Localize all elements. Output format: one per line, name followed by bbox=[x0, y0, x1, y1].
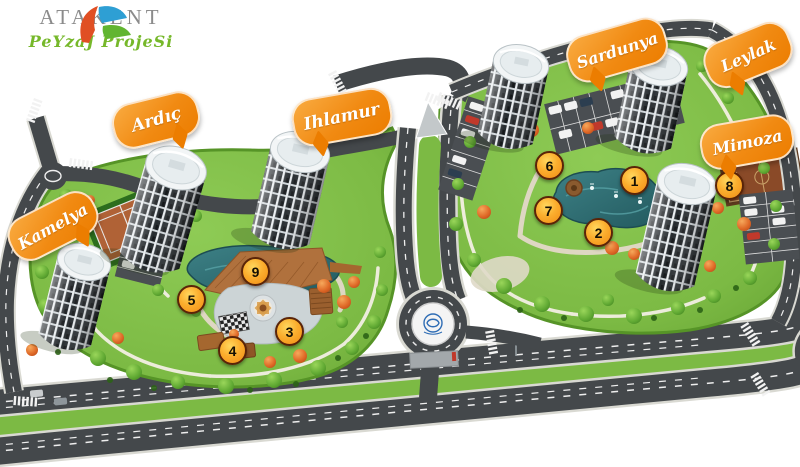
atakent-logo-icon bbox=[68, 4, 134, 44]
building-label-text: Mimoza bbox=[710, 125, 783, 158]
poi-marker-5[interactable]: 5 bbox=[177, 285, 206, 314]
poi-marker-6[interactable]: 6 bbox=[535, 151, 564, 180]
poi-marker-1[interactable]: 1 bbox=[620, 166, 649, 195]
poi-marker-2[interactable]: 2 bbox=[584, 218, 613, 247]
building-label-text: Ardıç bbox=[129, 103, 183, 136]
poi-marker-4[interactable]: 4 bbox=[218, 336, 247, 365]
poi-marker-9[interactable]: 9 bbox=[241, 257, 270, 286]
building-label-text: Sardunya bbox=[574, 28, 660, 72]
poi-marker-3[interactable]: 3 bbox=[275, 317, 304, 346]
poi-marker-7[interactable]: 7 bbox=[534, 196, 563, 225]
building-label-text: Ihlamur bbox=[302, 99, 382, 135]
site-plan-illustration bbox=[0, 0, 800, 467]
logo: ATAKENT PeYzaJ ProjeSi bbox=[16, 4, 186, 51]
site-plan-page: ATAKENT PeYzaJ ProjeSi Kamelya Ardıç Ihl… bbox=[0, 0, 800, 467]
roundabout bbox=[396, 287, 470, 361]
building-label-text: Leylak bbox=[718, 34, 779, 75]
